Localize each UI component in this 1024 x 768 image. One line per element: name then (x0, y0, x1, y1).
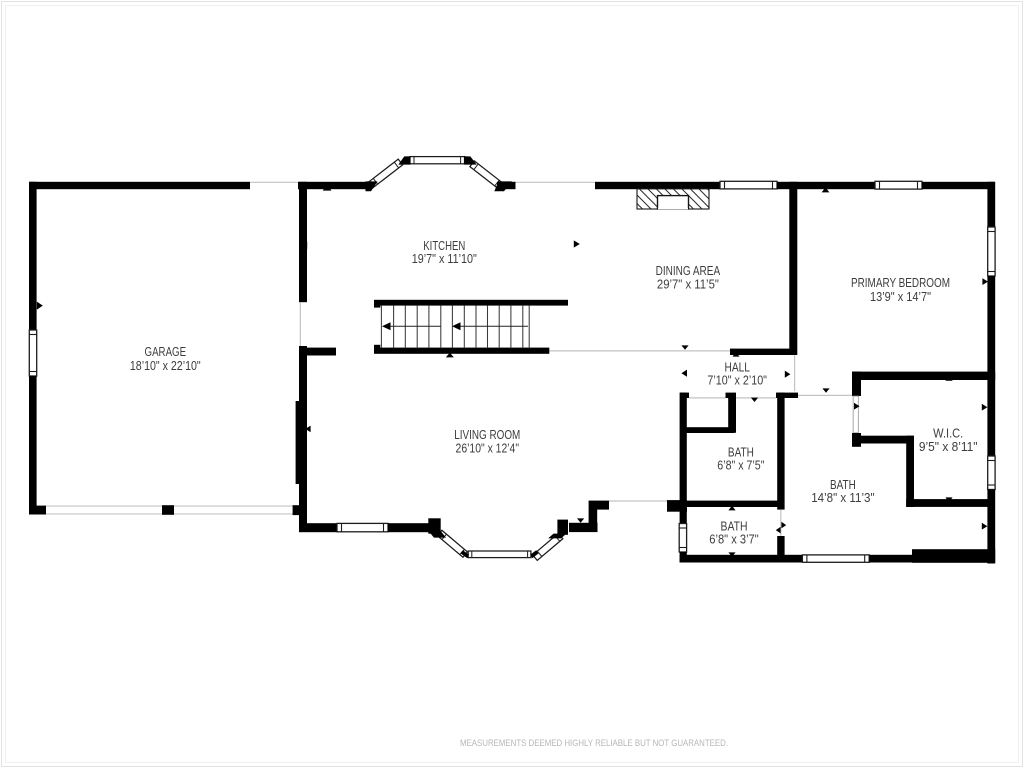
svg-text:BATH: BATH (728, 446, 754, 460)
svg-text:KITCHEN: KITCHEN (423, 239, 465, 253)
svg-text:MEASUREMENTS DEEMED HIGHLY REL: MEASUREMENTS DEEMED HIGHLY RELIABLE BUT … (460, 738, 728, 749)
svg-text:HALL: HALL (725, 360, 750, 374)
svg-text:BATH: BATH (830, 478, 856, 492)
svg-text:29’7" x 11’5": 29’7" x 11’5" (657, 277, 719, 291)
svg-text:18’10" x 22’10": 18’10" x 22’10" (130, 359, 201, 373)
svg-text:GARAGE: GARAGE (145, 345, 187, 359)
svg-text:7’10" x 2’10": 7’10" x 2’10" (707, 374, 767, 388)
svg-text:14’8" x 11’3": 14’8" x 11’3" (811, 491, 874, 505)
svg-text:DINING AREA: DINING AREA (656, 264, 721, 278)
svg-text:9’5" x 8’11": 9’5" x 8’11" (919, 440, 978, 454)
svg-text:19’7" x 11’10": 19’7" x 11’10" (412, 252, 477, 266)
svg-text:13’9" x 14’7": 13’9" x 14’7" (870, 290, 931, 304)
svg-text:6’8" x 3’7": 6’8" x 3’7" (709, 533, 758, 547)
svg-text:W.I.C.: W.I.C. (933, 427, 963, 441)
svg-text:26’10" x 12’4": 26’10" x 12’4" (456, 441, 520, 455)
svg-text:BATH: BATH (721, 519, 748, 533)
svg-text:PRIMARY BEDROOM: PRIMARY BEDROOM (851, 276, 950, 290)
svg-text:LIVING ROOM: LIVING ROOM (454, 428, 520, 442)
svg-text:6’8" x 7’5": 6’8" x 7’5" (717, 459, 764, 473)
